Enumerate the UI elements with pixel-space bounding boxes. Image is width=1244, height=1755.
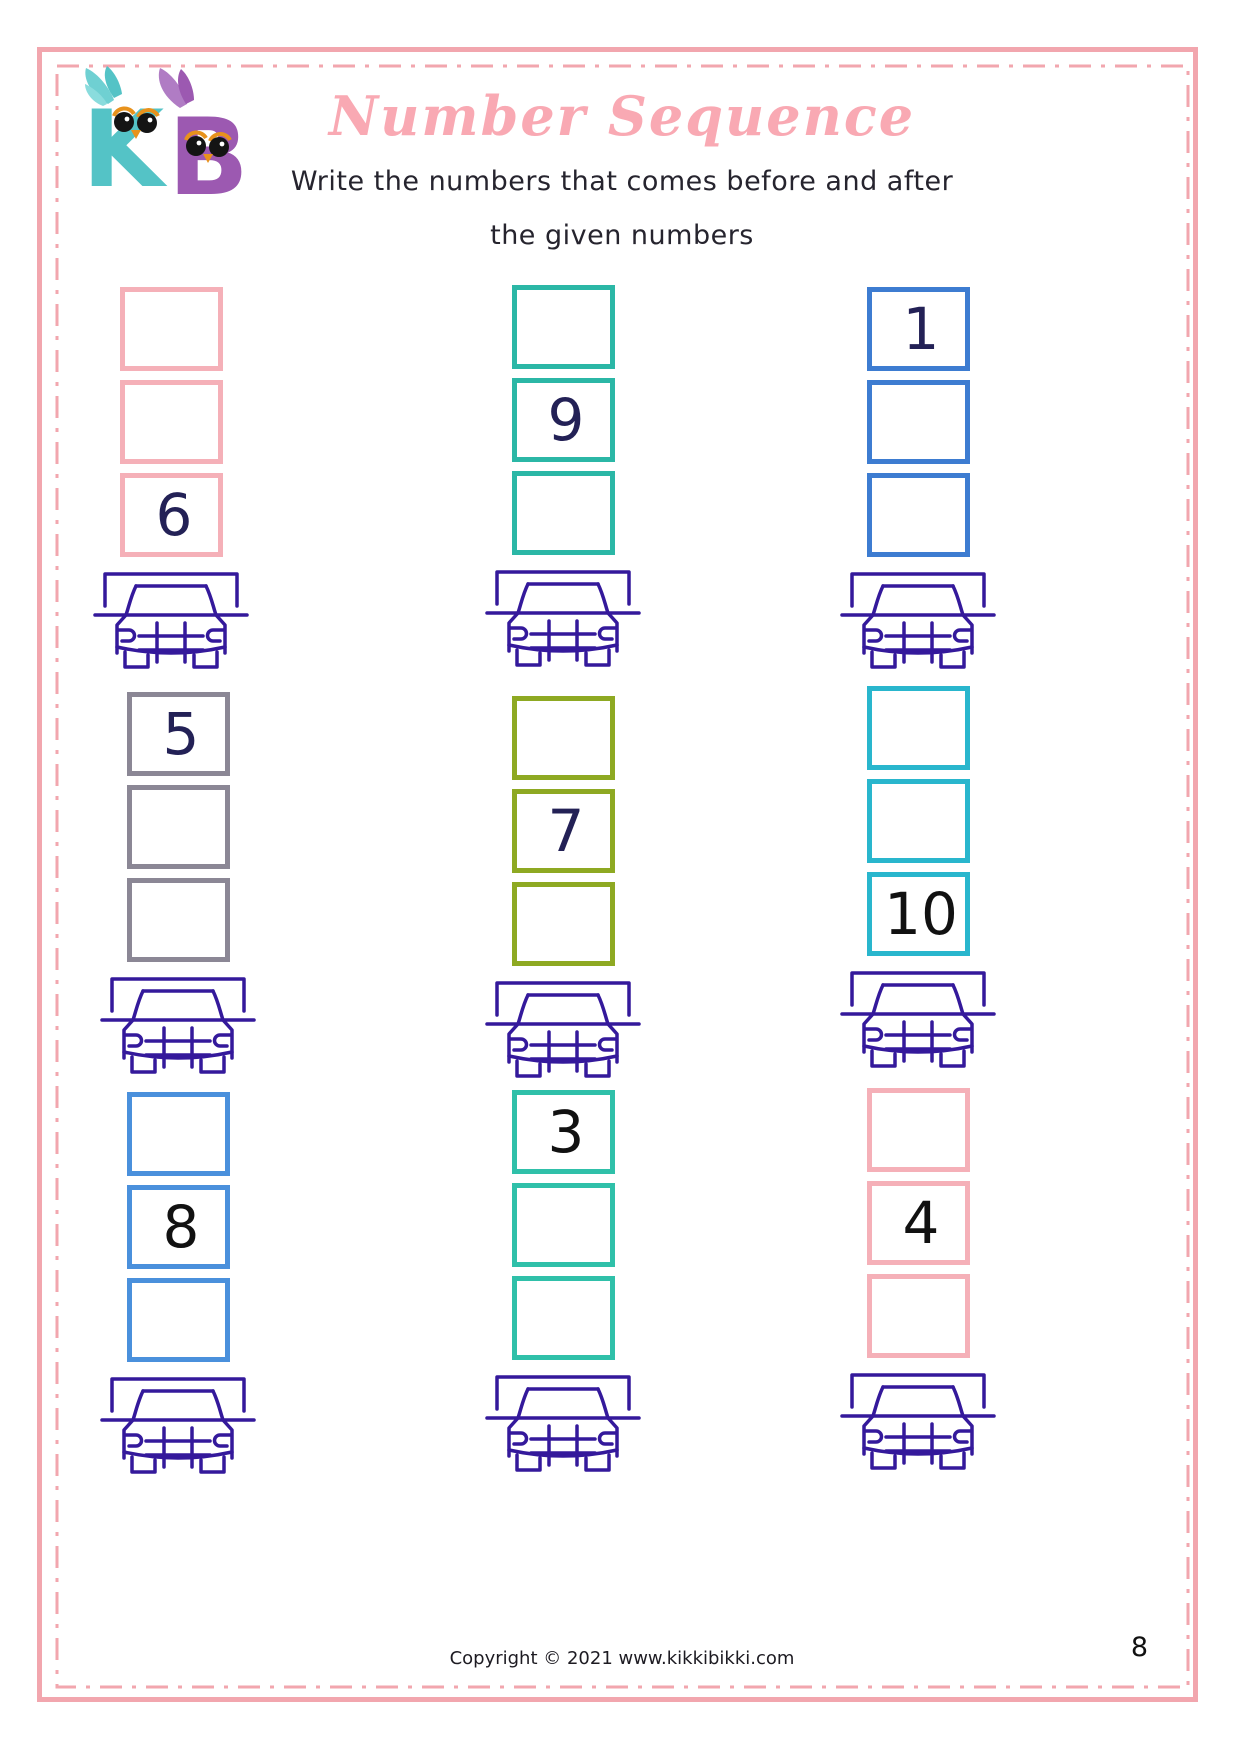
car-icon	[483, 975, 643, 1079]
answer-box[interactable]	[512, 285, 615, 369]
box-number: 8	[157, 1198, 200, 1256]
car-icon	[98, 971, 258, 1075]
answer-box[interactable]: 3	[512, 1090, 615, 1174]
car-icon	[838, 965, 998, 1069]
answer-box[interactable]	[512, 471, 615, 555]
puzzle-stack-3: 1	[838, 287, 998, 670]
box-number: 1	[897, 300, 940, 358]
instruction-line-2: the given numbers	[0, 220, 1244, 251]
answer-box[interactable]: 6	[120, 473, 223, 557]
answer-box[interactable]	[867, 473, 970, 557]
answer-box[interactable]	[127, 878, 230, 962]
answer-box[interactable]	[867, 686, 970, 770]
box-number: 5	[157, 705, 200, 763]
answer-box[interactable]	[867, 1274, 970, 1358]
answer-box[interactable]	[120, 287, 223, 371]
answer-box[interactable]: 5	[127, 692, 230, 776]
answer-box[interactable]	[512, 1276, 615, 1360]
puzzle-stack-8: 3	[483, 1090, 643, 1473]
answer-box[interactable]: 7	[512, 789, 615, 873]
answer-box[interactable]	[120, 380, 223, 464]
car-icon	[838, 1367, 998, 1471]
answer-box[interactable]	[512, 882, 615, 966]
car-icon	[838, 566, 998, 670]
answer-box[interactable]	[867, 779, 970, 863]
answer-box[interactable]	[127, 785, 230, 869]
answer-box[interactable]: 4	[867, 1181, 970, 1265]
answer-box[interactable]	[512, 696, 615, 780]
box-number: 6	[150, 486, 193, 544]
answer-box[interactable]: 10	[867, 872, 970, 956]
answer-box[interactable]	[867, 380, 970, 464]
puzzle-stack-7: 8	[98, 1092, 258, 1475]
puzzle-stack-2: 9	[483, 285, 643, 668]
answer-box[interactable]	[127, 1278, 230, 1362]
answer-box[interactable]	[867, 1088, 970, 1172]
puzzle-stack-5: 7	[483, 696, 643, 1079]
car-icon	[98, 1371, 258, 1475]
answer-box[interactable]: 8	[127, 1185, 230, 1269]
copyright-text: Copyright © 2021 www.kikkibikki.com	[0, 1648, 1244, 1669]
box-number: 7	[542, 802, 585, 860]
answer-box[interactable]	[512, 1183, 615, 1267]
box-number: 9	[542, 391, 585, 449]
worksheet-page: K B Number Sequence Write the numbers th…	[0, 0, 1244, 1755]
page-number: 8	[1131, 1632, 1148, 1663]
answer-box[interactable]: 1	[867, 287, 970, 371]
car-icon	[91, 566, 251, 670]
puzzle-stack-9: 4	[838, 1088, 998, 1471]
answer-box[interactable]	[127, 1092, 230, 1176]
car-icon	[483, 564, 643, 668]
puzzle-stack-6: 10	[838, 686, 998, 1069]
puzzle-stack-1: 6	[91, 287, 251, 670]
box-number: 4	[897, 1194, 940, 1252]
page-title: Number Sequence	[0, 84, 1244, 148]
puzzle-stack-4: 5	[98, 692, 258, 1075]
box-number: 10	[878, 885, 958, 943]
car-icon	[483, 1369, 643, 1473]
instruction-line-1: Write the numbers that comes before and …	[0, 166, 1244, 197]
answer-box[interactable]: 9	[512, 378, 615, 462]
box-number: 3	[542, 1103, 585, 1161]
